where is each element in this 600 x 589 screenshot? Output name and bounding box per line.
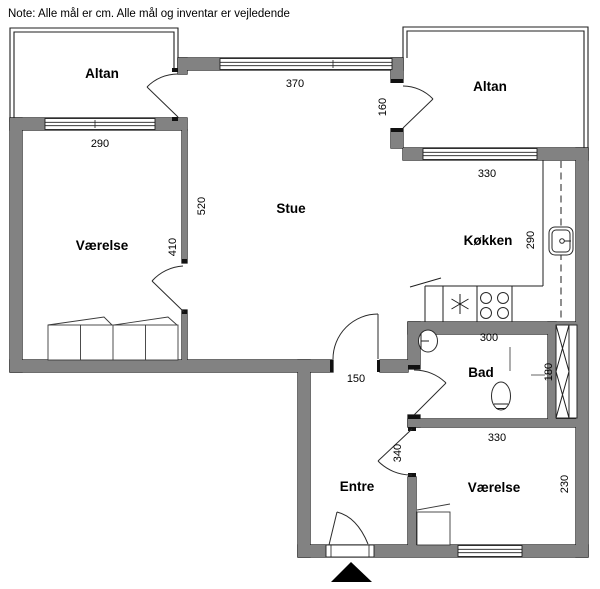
dim-vaerelse-left-depth: 410 bbox=[167, 238, 179, 256]
dim-entre-stue-opening: 150 bbox=[347, 373, 365, 385]
door-jamb bbox=[182, 259, 188, 263]
dim-stue-window: 370 bbox=[286, 78, 304, 90]
door-jamb bbox=[330, 360, 333, 372]
window-koekken bbox=[423, 149, 537, 160]
dim-bad-depth: 180 bbox=[543, 363, 555, 381]
door-jamb bbox=[391, 128, 403, 132]
dim-koekken-depth: 290 bbox=[525, 231, 537, 249]
plan-note: Note: Alle mål er cm. Alle mål og invent… bbox=[8, 8, 290, 20]
dim-bad-width: 300 bbox=[480, 332, 498, 344]
door-opening-altan-right bbox=[390, 83, 404, 128]
dim-stue-west-wall: 520 bbox=[196, 197, 208, 215]
toilet-icon bbox=[492, 382, 511, 410]
room-label-altan-right: Altan bbox=[473, 79, 507, 94]
door-jamb bbox=[408, 415, 420, 419]
room-label-koekken: Køkken bbox=[464, 233, 513, 248]
door-jamb bbox=[391, 79, 403, 83]
room-label-vaerelse-bottom: Værelse bbox=[468, 480, 521, 495]
washbasin-icon bbox=[419, 330, 438, 352]
dim-vaerelse-left-window: 290 bbox=[91, 138, 109, 150]
dim-vaerelse-bottom-depth: 230 bbox=[559, 475, 571, 493]
window-stue bbox=[220, 59, 392, 70]
dim-altan-right-door: 160 bbox=[377, 98, 389, 116]
window-vaerelse-bottom bbox=[458, 546, 522, 557]
room-label-entre: Entre bbox=[340, 479, 375, 494]
kitchen-sink-icon bbox=[549, 227, 573, 255]
window-vaerelse-left bbox=[45, 119, 155, 130]
room-label-bad: Bad bbox=[468, 365, 494, 380]
door-jamb bbox=[172, 117, 178, 121]
door-jamb bbox=[172, 68, 178, 72]
door-jamb bbox=[377, 360, 380, 372]
floor-plan: Note: Alle mål er cm. Alle mål og invent… bbox=[0, 0, 600, 589]
room-label-vaerelse-left: Værelse bbox=[76, 238, 129, 253]
dim-entre-depth: 340 bbox=[392, 444, 404, 462]
room-label-stue: Stue bbox=[276, 201, 306, 216]
floorplan-svg: Note: Alle mål er cm. Alle mål og invent… bbox=[0, 0, 600, 589]
room-label-altan-left: Altan bbox=[85, 66, 119, 81]
door-jamb bbox=[408, 365, 420, 369]
dim-vaerelse-bottom-width: 330 bbox=[488, 432, 506, 444]
dim-koekken-window: 330 bbox=[478, 168, 496, 180]
installation-shaft-icon bbox=[556, 325, 577, 418]
